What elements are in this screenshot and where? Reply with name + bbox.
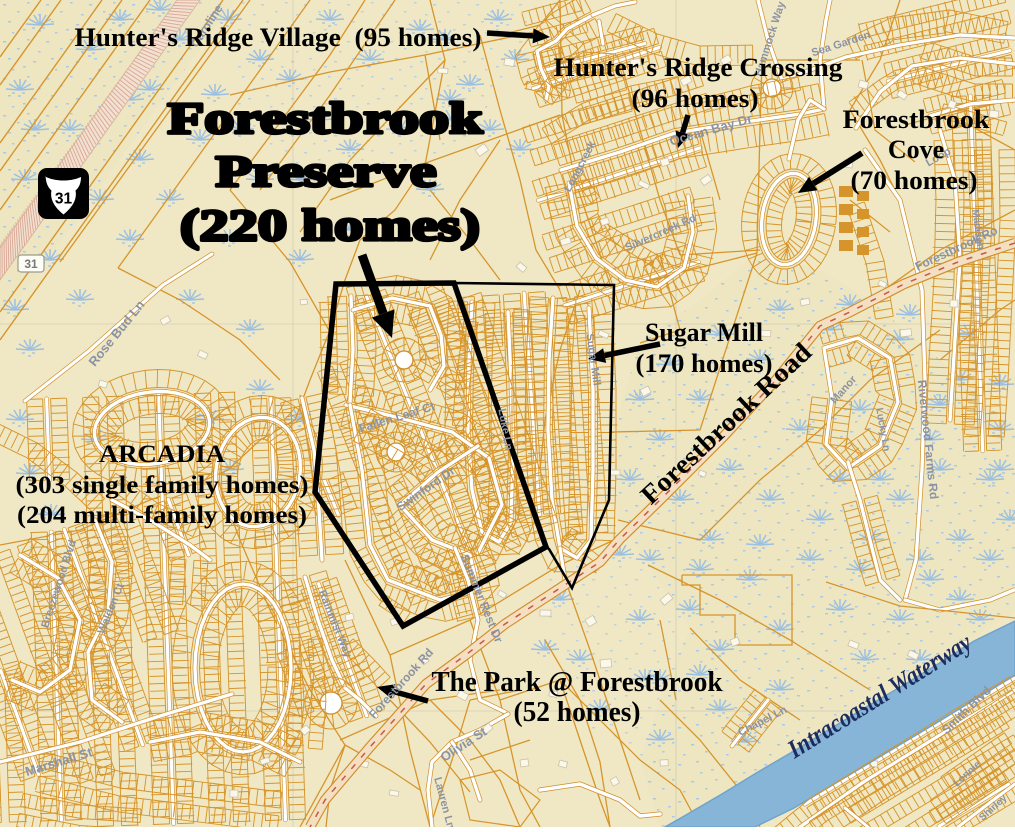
svg-text:(170 homes): (170 homes)	[636, 349, 773, 378]
svg-text:(303 single family homes): (303 single family homes)	[16, 472, 309, 499]
svg-text:ARCADIA: ARCADIA	[99, 441, 225, 468]
svg-text:Forestbrook: Forestbrook	[843, 105, 991, 134]
svg-text:31: 31	[24, 257, 38, 271]
svg-text:(96 homes): (96 homes)	[632, 84, 759, 113]
svg-text:Sugar Mill: Sugar Mill	[645, 318, 763, 347]
svg-text:Hunter's Ridge Village (95 ho: Hunter's Ridge Village (95 homes)	[75, 23, 482, 52]
svg-text:Preserve: Preserve	[216, 147, 437, 196]
svg-text:(70 homes): (70 homes)	[851, 166, 978, 195]
svg-text:Hunter's Ridge Crossing: Hunter's Ridge Crossing	[554, 53, 843, 82]
svg-text:The Park @ Forestbrook: The Park @ Forestbrook	[432, 667, 723, 698]
svg-text:Forestbrook: Forestbrook	[168, 94, 484, 143]
svg-text:(220 homes): (220 homes)	[180, 201, 480, 250]
svg-text:(204 multi-family homes): (204 multi-family homes)	[17, 502, 307, 529]
svg-text:(52 homes): (52 homes)	[514, 697, 641, 728]
svg-text:Cove: Cove	[888, 135, 944, 164]
svg-text:31: 31	[55, 191, 73, 208]
